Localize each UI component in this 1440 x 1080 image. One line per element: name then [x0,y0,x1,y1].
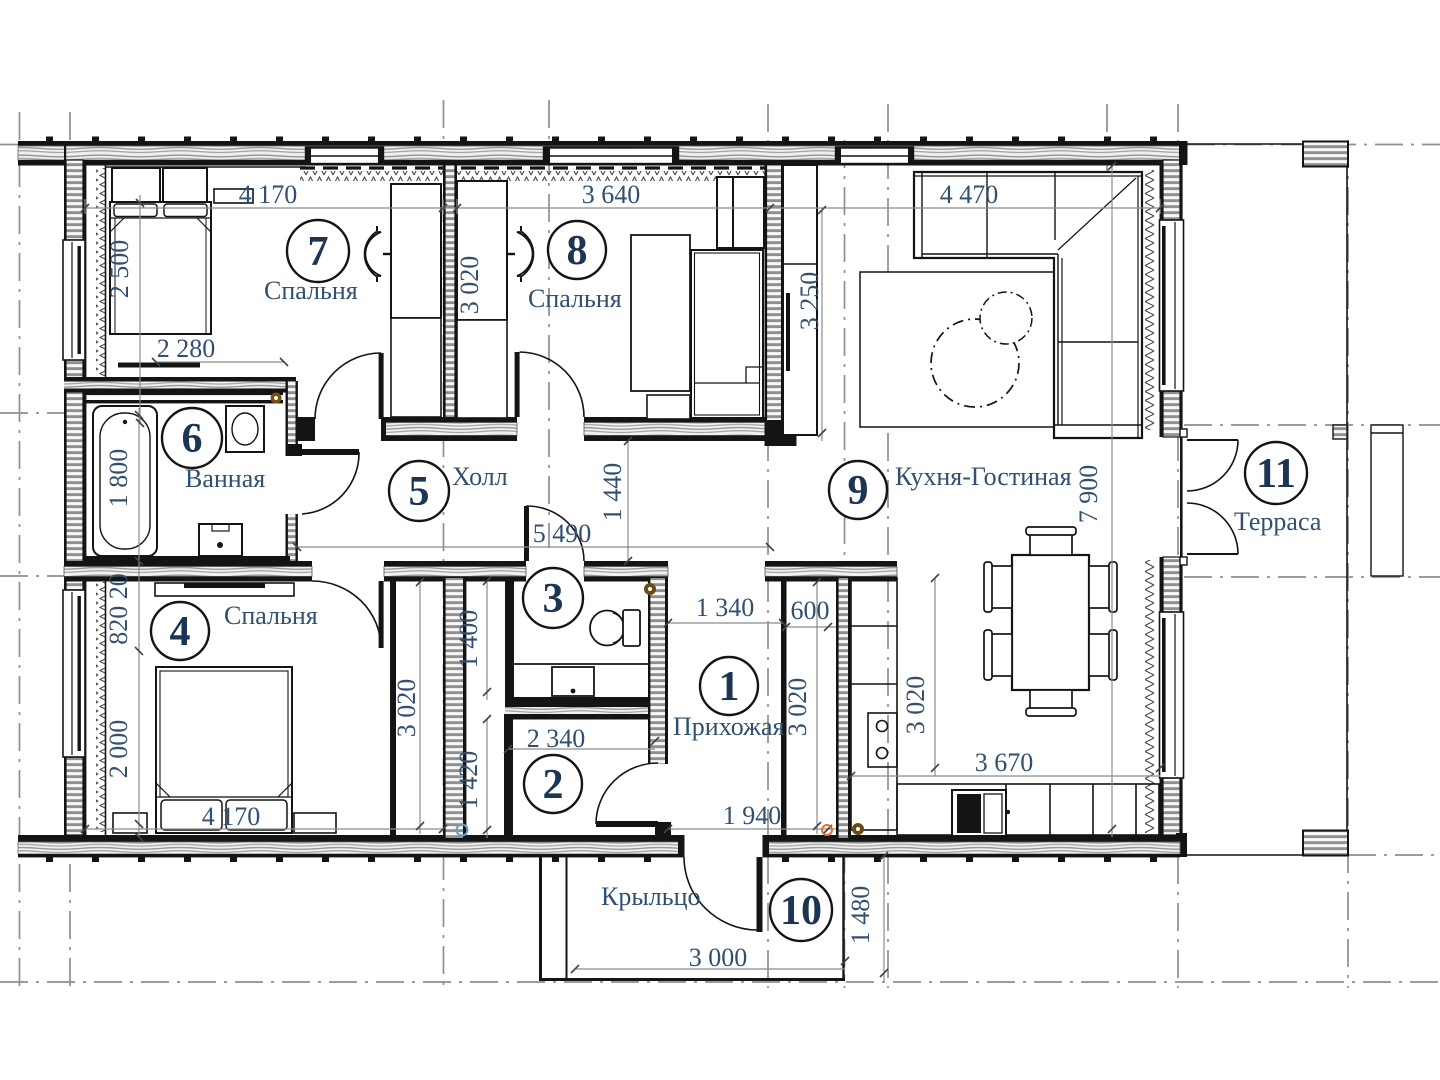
svg-text:1 440: 1 440 [598,463,627,522]
svg-text:2: 2 [543,762,564,808]
svg-text:600: 600 [791,596,830,625]
svg-text:4 170: 4 170 [202,802,261,831]
svg-text:3 670: 3 670 [975,748,1034,777]
svg-text:3 640: 3 640 [582,180,641,209]
svg-text:4 170: 4 170 [239,180,298,209]
svg-text:7 900: 7 900 [1074,465,1103,524]
svg-text:3 000: 3 000 [689,943,748,972]
svg-text:Спальня: Спальня [224,601,318,630]
svg-text:9: 9 [848,468,869,514]
svg-text:3 020: 3 020 [392,679,421,738]
svg-text:Кухня-Гостиная: Кухня-Гостиная [895,462,1072,491]
svg-text:Холл: Холл [452,462,508,491]
svg-text:4 470: 4 470 [940,180,999,209]
svg-text:1 340: 1 340 [696,593,755,622]
svg-text:3 020: 3 020 [901,676,930,735]
svg-text:5 490: 5 490 [533,519,592,548]
svg-text:Ванная: Ванная [185,464,265,493]
svg-text:1 940: 1 940 [723,801,782,830]
svg-text:3 250: 3 250 [795,272,824,331]
svg-text:3 020: 3 020 [455,256,484,315]
svg-text:820 20: 820 20 [104,573,133,645]
svg-text:1 420: 1 420 [454,751,483,810]
svg-text:Терраса: Терраса [1234,507,1322,536]
svg-text:Крыльцо: Крыльцо [601,882,701,911]
svg-text:7: 7 [308,229,329,275]
svg-text:3: 3 [543,576,564,622]
svg-text:8: 8 [567,228,588,274]
svg-text:Прихожая: Прихожая [673,712,785,741]
svg-text:11: 11 [1256,451,1296,497]
svg-text:2 000: 2 000 [104,720,133,779]
svg-text:1 800: 1 800 [104,449,133,508]
svg-text:6: 6 [182,416,203,462]
svg-text:1: 1 [719,664,740,710]
svg-text:3 020: 3 020 [783,678,812,737]
svg-text:2 280: 2 280 [157,334,216,363]
svg-text:Спальня: Спальня [528,284,622,313]
svg-text:4: 4 [170,609,191,655]
svg-text:2 340: 2 340 [527,724,586,753]
svg-text:10: 10 [780,888,822,934]
svg-text:1 400: 1 400 [454,610,483,669]
svg-text:Спальня: Спальня [264,276,358,305]
svg-text:5: 5 [409,469,430,515]
svg-text:2 500: 2 500 [105,240,134,299]
svg-text:1 480: 1 480 [846,886,875,945]
